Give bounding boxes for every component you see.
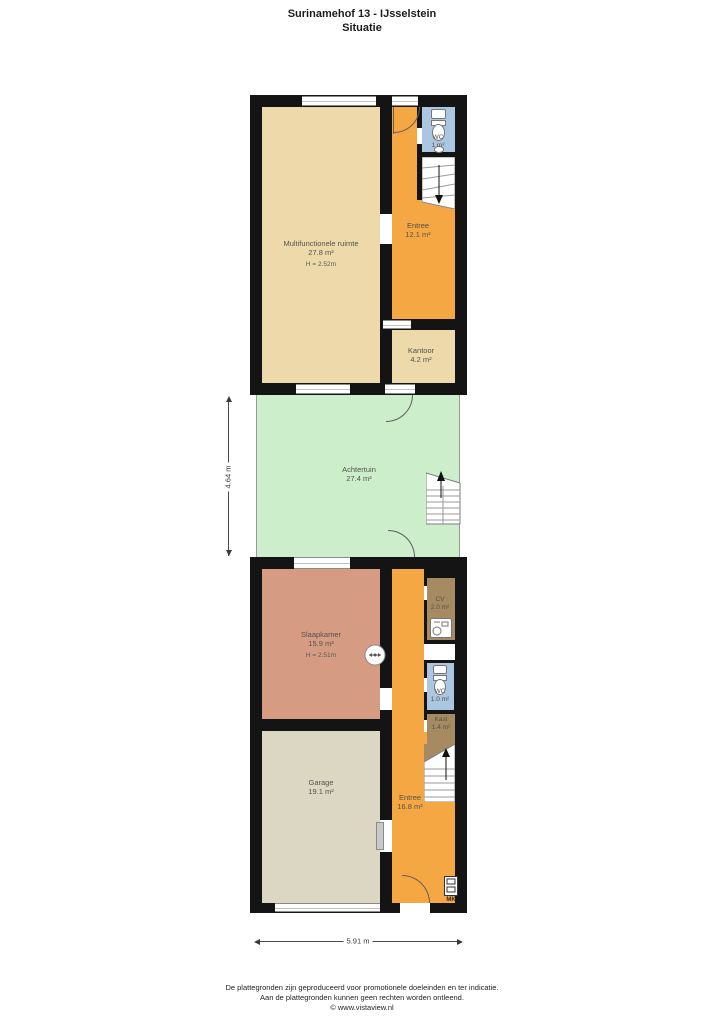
floorplan: MK Multifunctionele ruimte 27.8 m² H = 2… bbox=[0, 0, 724, 1024]
room-name: CV bbox=[431, 596, 449, 604]
room-name: Entree bbox=[405, 221, 430, 230]
label-entree-boven: Entree 12.1 m² bbox=[405, 221, 430, 239]
door-leaf-upper-entree bbox=[393, 107, 394, 134]
dimension-arrow-left bbox=[254, 939, 260, 945]
label-multifunctionele-ruimte: Multifunctionele ruimte 27.8 m² H = 2.52… bbox=[283, 239, 358, 269]
door-threshold-garden-top bbox=[385, 384, 415, 394]
room-name: Slaapkamer bbox=[301, 630, 341, 639]
label-cv: CV 2.0 m² bbox=[431, 596, 449, 611]
room-name: Achtertuin bbox=[342, 465, 376, 474]
door-opening-wc-beneden bbox=[424, 678, 427, 692]
room-height: H = 2.52m bbox=[283, 260, 358, 269]
window-kantoor-entree bbox=[383, 320, 411, 329]
room-area: 4.2 m² bbox=[408, 355, 434, 364]
staircase-lower-icon bbox=[424, 744, 455, 802]
room-area: 1.0 m² bbox=[431, 696, 449, 704]
door-opening-cv bbox=[424, 586, 427, 600]
room-area: 1.4 m² bbox=[432, 724, 450, 732]
door-opening-slaapkamer bbox=[380, 688, 392, 710]
room-entree-boven-main bbox=[392, 200, 455, 319]
photo-point-icon bbox=[364, 644, 386, 666]
room-area: 27.4 m² bbox=[342, 474, 376, 483]
label-kantoor: Kantoor 4.2 m² bbox=[408, 346, 434, 364]
room-name: Kast bbox=[432, 716, 450, 724]
label-wc-beneden: WC 1.0 m² bbox=[431, 688, 449, 703]
meterkast-detail-icon bbox=[444, 876, 458, 896]
label-wc-boven: WC 1 m² bbox=[432, 134, 445, 149]
label-entree-beneden: Entree 16.8 m² bbox=[397, 793, 422, 811]
corridor-entree-beneden bbox=[392, 569, 424, 731]
door-opening-wc-boven bbox=[417, 128, 422, 144]
room-height: H = 2.51m bbox=[301, 651, 341, 660]
dimension-label-building-width: 5.91 m bbox=[344, 936, 373, 947]
door-opening-kast bbox=[424, 720, 427, 732]
room-name: Entree bbox=[397, 793, 422, 802]
dimension-arrow-down bbox=[226, 550, 232, 556]
garage-door-leaf bbox=[376, 822, 384, 850]
door-threshold-upper-entree bbox=[392, 96, 418, 106]
room-name: Kantoor bbox=[408, 346, 434, 355]
dimension-label-garden-height: 4.64 m bbox=[223, 463, 234, 492]
room-name: WC bbox=[432, 134, 445, 142]
dimension-arrow-right bbox=[457, 939, 463, 945]
sink-icon-wc-beneden bbox=[433, 665, 447, 674]
room-garage bbox=[262, 731, 380, 903]
room-name: Garage bbox=[308, 778, 333, 787]
garage-door-opening bbox=[275, 903, 380, 912]
window-upper-bottom bbox=[296, 384, 350, 394]
room-area: 1 m² bbox=[432, 142, 445, 150]
disclaimer-line-1: De plattegronden zijn geproduceerd voor … bbox=[0, 983, 724, 993]
room-name: WC bbox=[431, 688, 449, 696]
meterkast-label: MK bbox=[446, 897, 455, 903]
room-area: 19.1 m² bbox=[308, 787, 333, 796]
front-door-opening bbox=[400, 903, 430, 913]
room-area: 12.1 m² bbox=[405, 230, 430, 239]
copyright-line: © www.vistaview.nl bbox=[0, 1003, 724, 1013]
room-area: 15.9 m² bbox=[301, 639, 341, 648]
window-upper-top-left bbox=[302, 96, 376, 106]
staircase-upper-icon bbox=[422, 157, 455, 209]
staircase-garden-icon bbox=[426, 468, 461, 525]
door-opening-mfr bbox=[380, 214, 392, 244]
dimension-arrow-up bbox=[226, 396, 232, 402]
label-achtertuin: Achtertuin 27.4 m² bbox=[342, 465, 376, 483]
room-area: 2.0 m² bbox=[431, 604, 449, 612]
landing-strip bbox=[424, 644, 455, 660]
room-area: 16.8 m² bbox=[397, 802, 422, 811]
window-lower-top bbox=[294, 557, 350, 569]
sink-icon-wc-boven bbox=[431, 109, 446, 119]
label-garage: Garage 19.1 m² bbox=[308, 778, 333, 796]
label-kast: Kast 1.4 m² bbox=[432, 716, 450, 731]
disclaimer-line-2: Aan de plattegronden kunnen geen rechten… bbox=[0, 993, 724, 1003]
room-area: 27.8 m² bbox=[283, 248, 358, 257]
boiler-detail-icon bbox=[430, 618, 452, 638]
label-slaapkamer: Slaapkamer 15.9 m² H = 2.51m bbox=[301, 630, 341, 660]
room-name: Multifunctionele ruimte bbox=[283, 239, 358, 248]
